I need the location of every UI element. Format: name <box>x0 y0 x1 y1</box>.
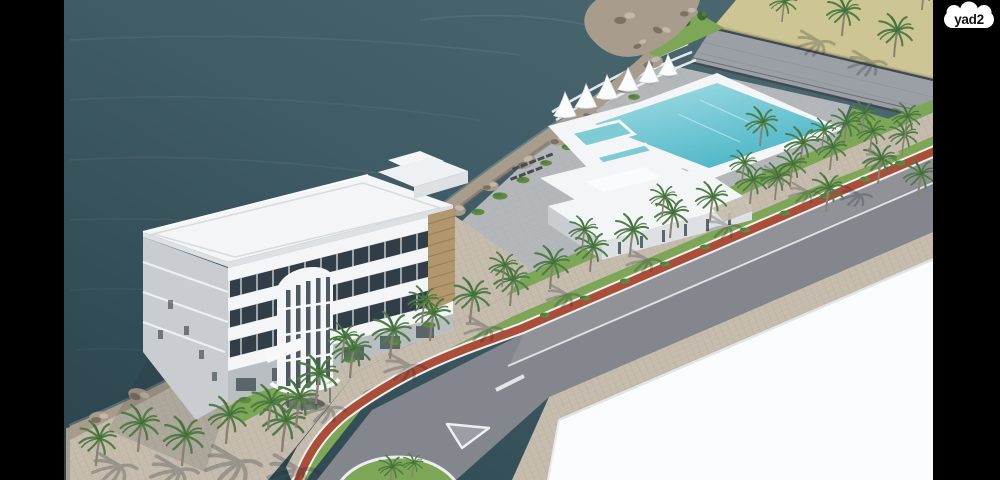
yad2-logo: yad2 <box>944 2 994 29</box>
letterbox-right <box>933 0 1000 480</box>
letterbox-left <box>0 0 64 480</box>
yad2-logo-text: yad2 <box>954 12 984 27</box>
listing-photo: yad2 <box>0 0 1000 480</box>
wood-slat-panel <box>428 208 455 312</box>
rendering-image: yad2 <box>0 0 1000 480</box>
